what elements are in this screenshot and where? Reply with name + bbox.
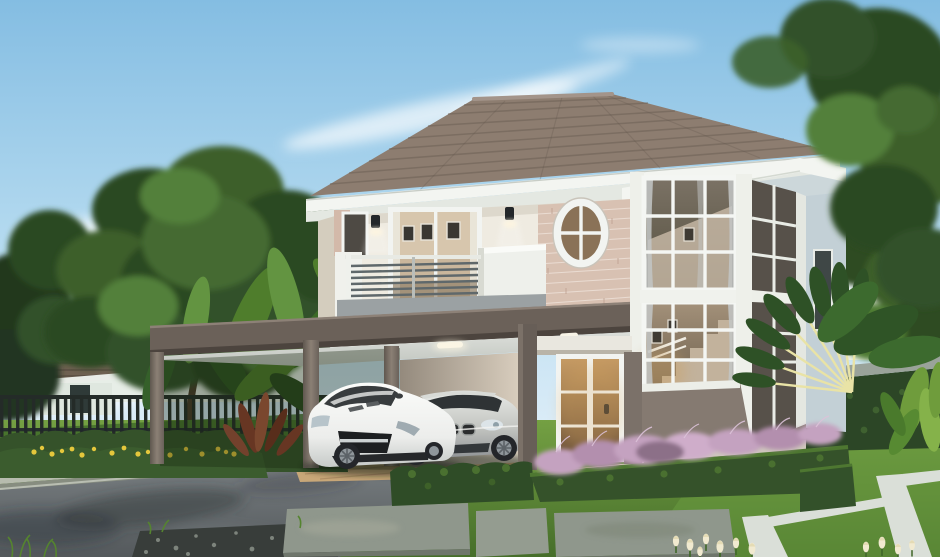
slab <box>476 508 549 557</box>
stepping-slabs <box>283 503 735 557</box>
hedge-front-of-cars <box>390 461 534 506</box>
canopy-column <box>150 352 164 464</box>
side-mirror <box>395 393 403 398</box>
rendering-canvas <box>0 0 940 557</box>
framed-picture <box>421 224 433 240</box>
oval-window <box>553 198 609 268</box>
sedan-wheel <box>491 435 517 461</box>
coupe-grille-bar <box>340 439 388 442</box>
framed-picture <box>403 226 414 241</box>
stair-picture <box>652 330 662 343</box>
bay-transom <box>640 290 740 303</box>
coupe-wheel <box>334 443 360 469</box>
house-rendering <box>0 0 940 557</box>
framed-picture <box>447 222 460 239</box>
door-glow <box>558 364 626 452</box>
